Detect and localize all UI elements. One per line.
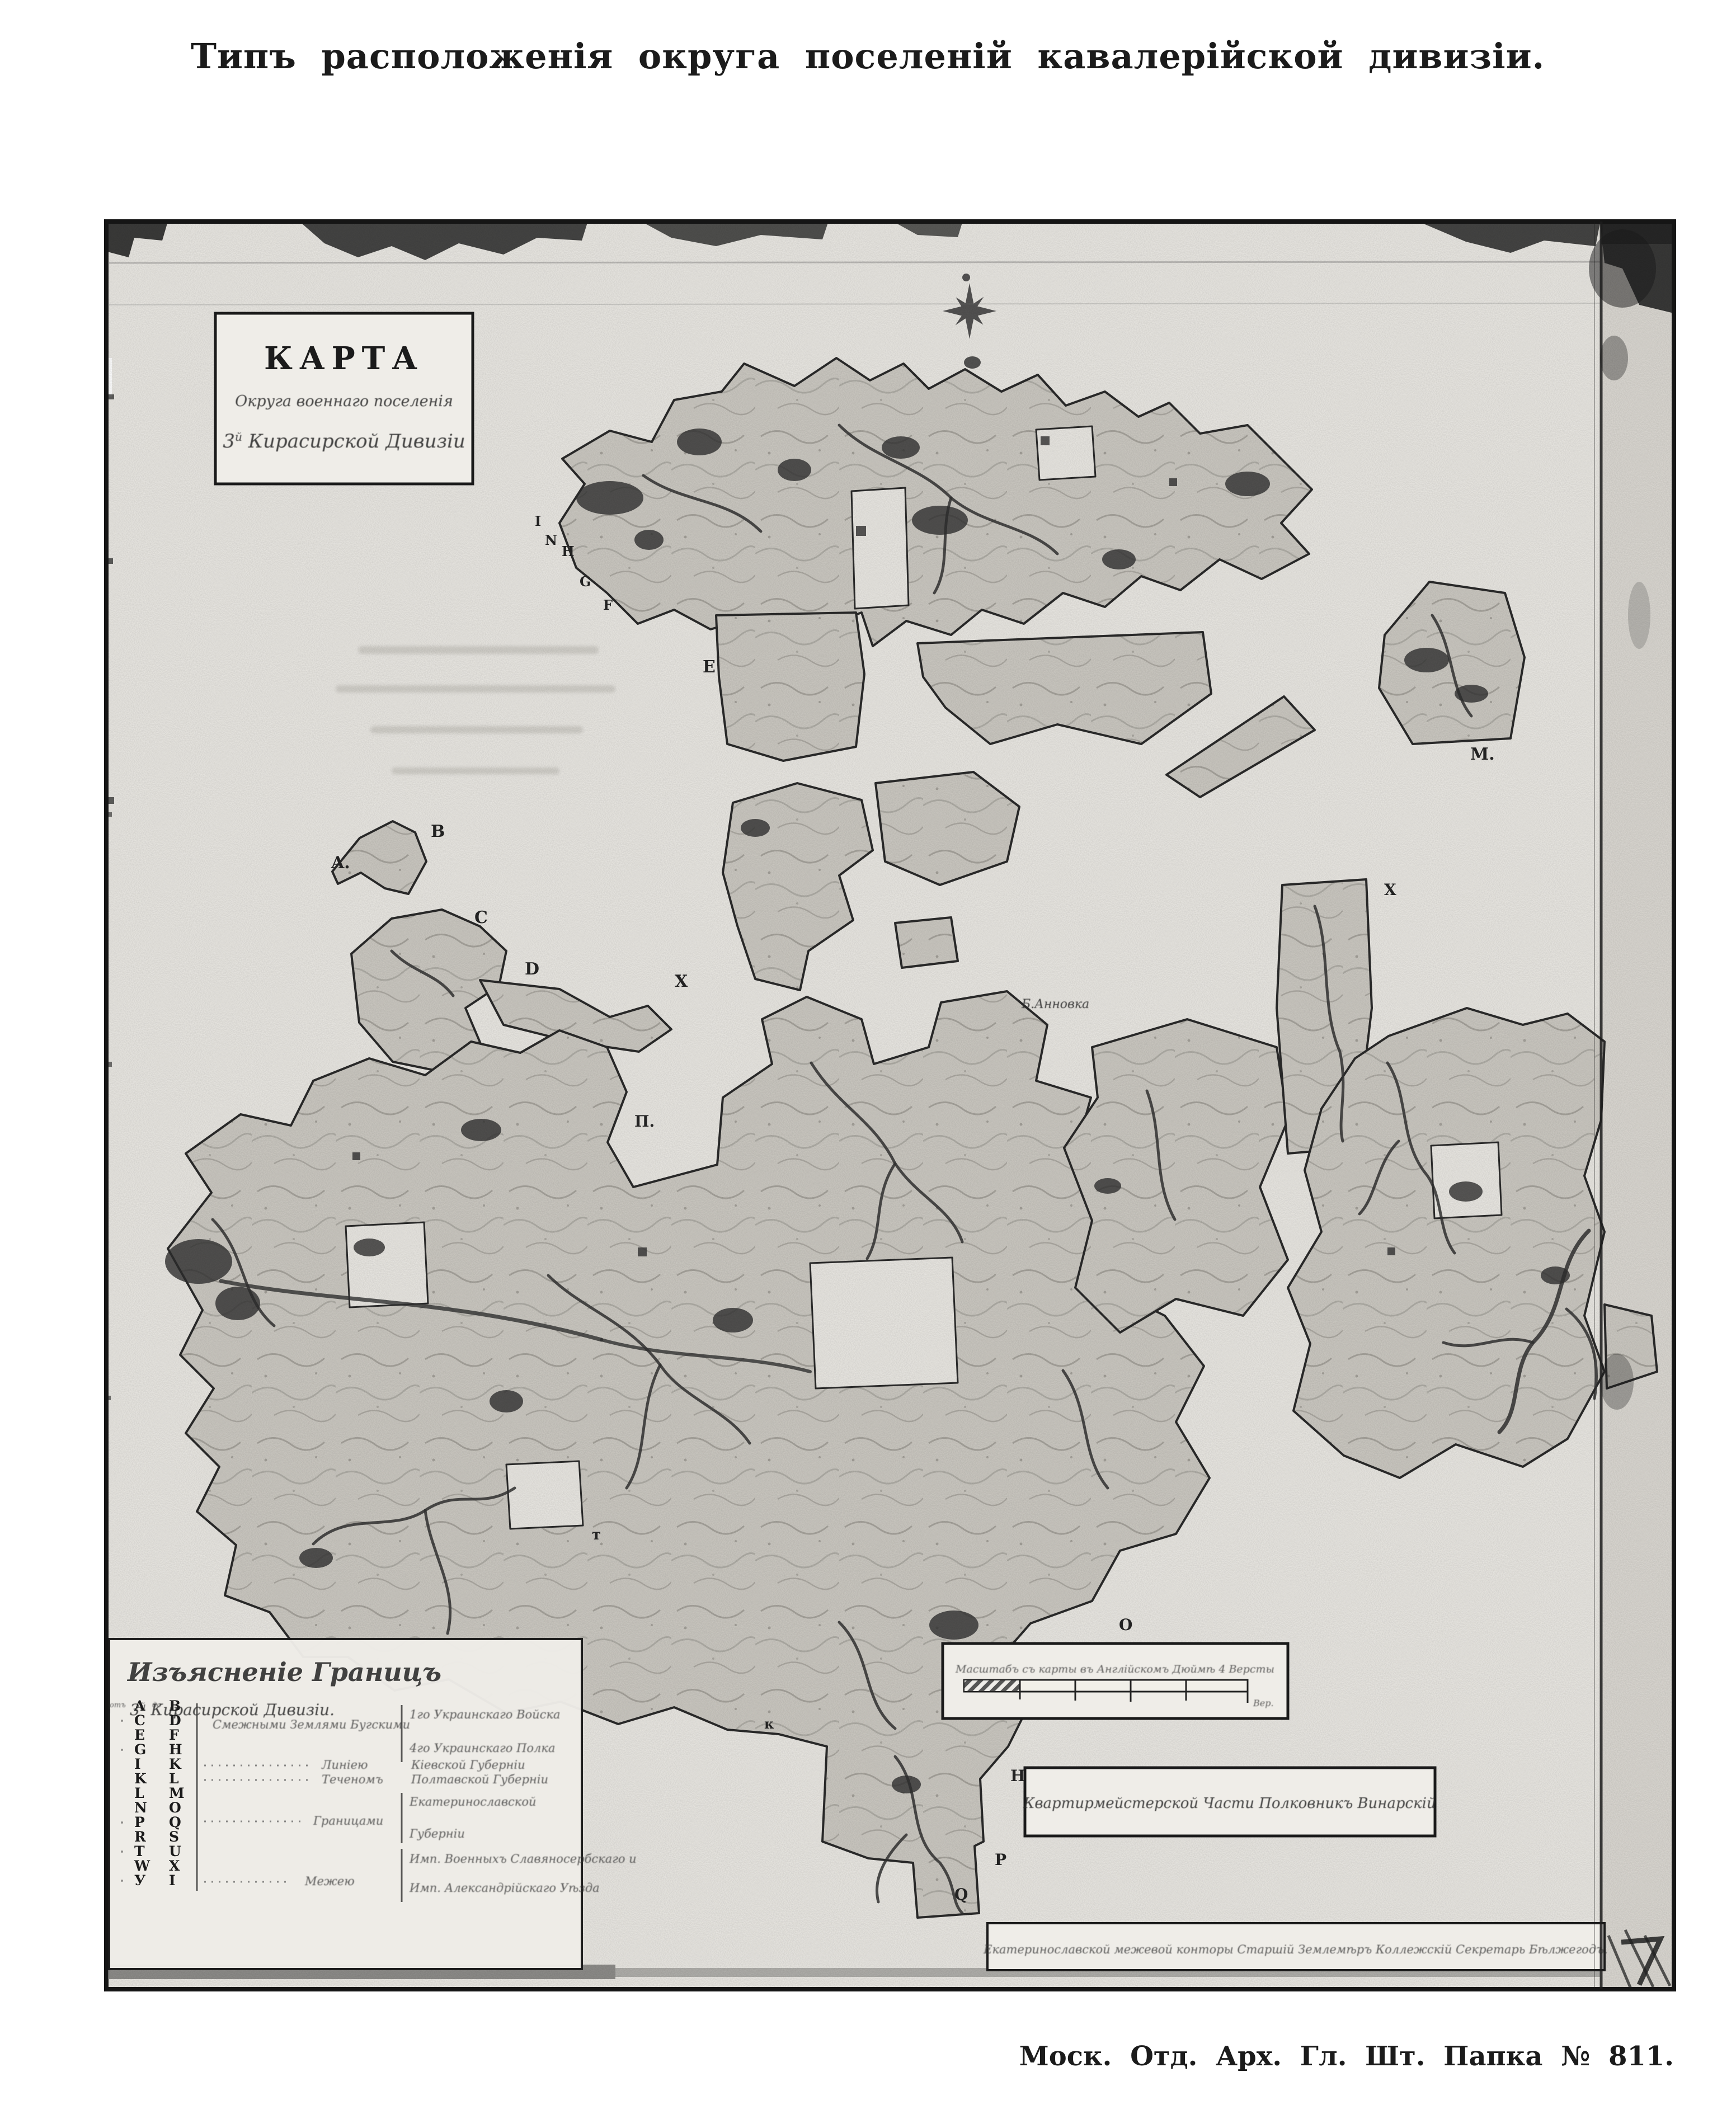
legend-letter: G bbox=[134, 1741, 146, 1758]
legend-entry: Линіею bbox=[321, 1758, 368, 1772]
legend-letter: T bbox=[134, 1843, 145, 1859]
legend-letter: L bbox=[134, 1785, 144, 1801]
map-label: I bbox=[535, 513, 541, 529]
map-label: Q bbox=[954, 1885, 968, 1904]
legend-letter: S bbox=[169, 1829, 179, 1845]
legend-letter: У bbox=[134, 1872, 145, 1889]
map-label: X bbox=[1384, 880, 1396, 899]
legend-entry: Границами bbox=[313, 1814, 383, 1828]
legend-letter: A bbox=[134, 1698, 145, 1714]
legend-letter: D bbox=[169, 1712, 181, 1729]
legend-letter: U bbox=[169, 1843, 181, 1859]
legend-entry: Полтавской Губерніи bbox=[411, 1773, 548, 1786]
legend-entry: Межею bbox=[304, 1875, 355, 1888]
legend-letter: E bbox=[134, 1727, 145, 1743]
map-label: X bbox=[675, 972, 688, 991]
map-label: к bbox=[764, 1716, 774, 1732]
legend-letter: R bbox=[134, 1829, 146, 1845]
legend-letter: I bbox=[169, 1872, 176, 1889]
legend-entry: Кіевской Губерніи bbox=[411, 1758, 525, 1772]
map-label: G bbox=[580, 573, 591, 590]
legend-letter: O bbox=[169, 1800, 181, 1816]
map-label: П. bbox=[634, 1112, 655, 1131]
legend-letter: I bbox=[134, 1756, 141, 1772]
legend-letter: W bbox=[134, 1858, 150, 1874]
map-label: A. bbox=[331, 853, 350, 873]
page-title: Типъ расположенія округа поселеній кавал… bbox=[191, 36, 1545, 77]
legend-entry: 4го Украинскаго Полка bbox=[409, 1741, 555, 1755]
legend-letter: K bbox=[169, 1756, 182, 1772]
legend-title: Изъясненіе Границъ bbox=[126, 1657, 441, 1687]
legend-letter: B bbox=[169, 1698, 181, 1714]
legend-letter: X bbox=[169, 1858, 180, 1874]
legend-entry: 1го Украинскаго Войска bbox=[410, 1708, 561, 1721]
map-label: F bbox=[603, 597, 613, 613]
scale-unit: Вер. bbox=[1253, 1698, 1274, 1708]
secretary-signature: Екатеринославской межевой конторы Старші… bbox=[983, 1943, 1608, 1956]
surveyor-signature: Квартирмейстерской Части Полковникъ Вина… bbox=[1023, 1795, 1436, 1812]
map-label: E bbox=[703, 657, 716, 677]
legend-letter: Q bbox=[169, 1814, 181, 1830]
map-label: B bbox=[431, 822, 445, 841]
legend-letter: N bbox=[134, 1800, 147, 1816]
legend-entry: Имп. Военныхъ Славяносербскаго и bbox=[409, 1852, 637, 1866]
legend-letter: K bbox=[134, 1770, 147, 1787]
legend-letter: F bbox=[169, 1727, 179, 1743]
legend-entry: Имп. Александрійскаго Уѣзда bbox=[409, 1881, 600, 1895]
scale-caption: Масштабъ съ карты въ Англійскомъ Дюймѣ 4… bbox=[955, 1663, 1274, 1675]
scale-box: Масштабъ съ карты въ Англійскомъ Дюймѣ 4… bbox=[943, 1644, 1288, 1718]
karta-box-subtitle: Округа военнаго поселенія bbox=[235, 393, 453, 410]
map-label: N bbox=[545, 532, 557, 548]
map-sheet: A. B C D X E I N H G F M. X П. т О Н. P … bbox=[102, 222, 1674, 1989]
map-label: M. bbox=[1470, 745, 1495, 764]
legend-entry: Губерніи bbox=[409, 1827, 465, 1840]
legend-entry: Екатеринославской bbox=[409, 1795, 537, 1809]
legend-letter: C bbox=[134, 1712, 145, 1729]
legend-letter: L bbox=[169, 1770, 179, 1787]
scale-bar-hatched-segment bbox=[964, 1680, 1020, 1692]
archive-caption: Моск. Отд. Арх. Гл. Шт. Папка № 811. bbox=[1019, 2041, 1674, 2072]
map-scan: Типъ расположенія округа поселеній кавал… bbox=[0, 0, 1736, 2119]
karta-box-title: КАРТА bbox=[264, 340, 424, 377]
map-label: H bbox=[562, 543, 575, 559]
legend-entry: Смежными Землями Бугскими bbox=[213, 1718, 410, 1731]
legend-letter: H bbox=[169, 1741, 182, 1758]
karta-box-division: 3й Кирасирской Дивизіи bbox=[223, 430, 465, 453]
secretary-box: Екатеринославской межевой конторы Старші… bbox=[983, 1923, 1608, 1970]
map-label: C bbox=[474, 908, 488, 927]
legend-entry: Теченомъ bbox=[322, 1773, 383, 1786]
map-village-label: Б.Анновка bbox=[1021, 997, 1089, 1011]
legend-row-prefix: отъ bbox=[110, 1701, 126, 1710]
map-label: О bbox=[1119, 1616, 1132, 1634]
legend-box: Изъясненіе Границъ 3й Кирасирской Дивизі… bbox=[109, 1639, 637, 1969]
map-label: P bbox=[995, 1850, 1006, 1869]
map-label: D bbox=[525, 959, 539, 979]
karta-title-box: КАРТА Округа военнаго поселенія 3й Кирас… bbox=[215, 313, 473, 484]
scanned-map-page: Типъ расположенія округа поселеній кавал… bbox=[0, 0, 1736, 2119]
map-label: т bbox=[592, 1527, 601, 1543]
legend-letter: M bbox=[169, 1785, 185, 1801]
surveyor-box: Квартирмейстерской Части Полковникъ Вина… bbox=[1023, 1768, 1436, 1836]
legend-row-prefix: до bbox=[152, 1701, 161, 1710]
legend-letter: P bbox=[134, 1814, 145, 1830]
